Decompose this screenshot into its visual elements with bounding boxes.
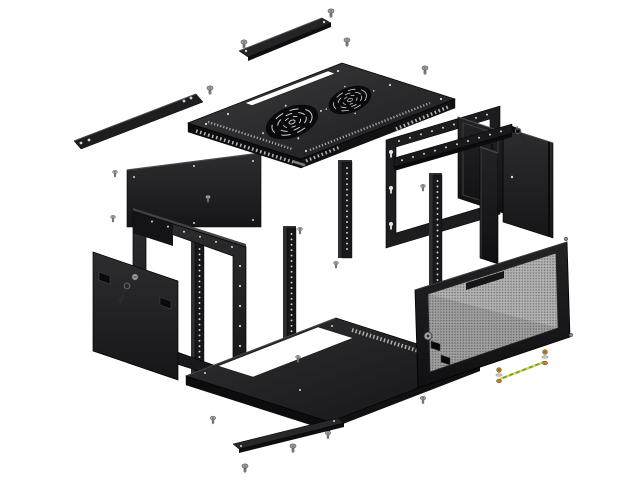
rack-rail-center xyxy=(283,226,296,352)
hinge-pin xyxy=(569,333,573,337)
side-panel-right-back xyxy=(503,126,553,238)
frame-pillar-right xyxy=(480,147,498,264)
rack-rail-right xyxy=(429,173,442,293)
rack-rail-center-front xyxy=(338,160,352,258)
diagram-svg xyxy=(0,0,640,480)
hinge-pin xyxy=(564,237,568,241)
exploded-diagram-canvas xyxy=(0,0,640,480)
wire-terminal xyxy=(496,368,502,383)
wire-terminal xyxy=(542,350,548,365)
